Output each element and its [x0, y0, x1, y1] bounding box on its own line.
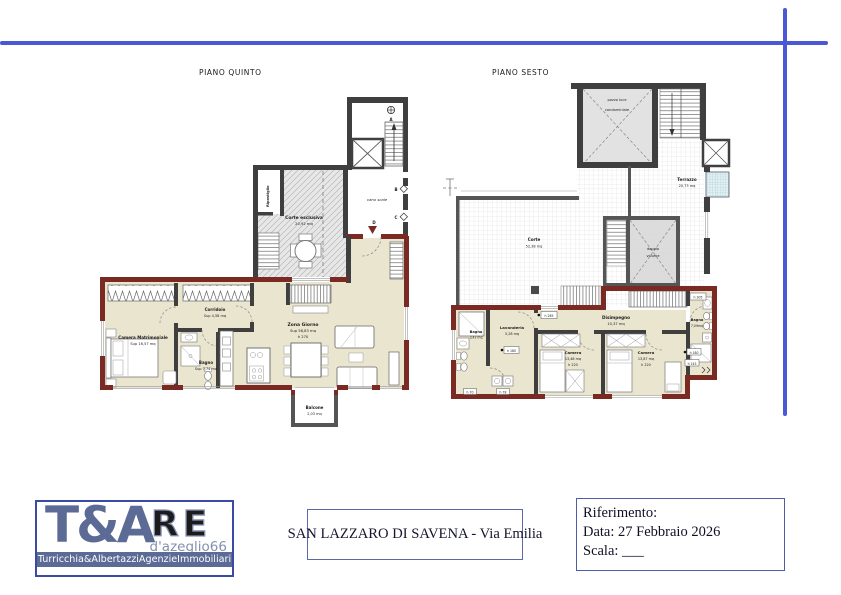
terrace-edge-stairs-icon [561, 286, 601, 306]
label-bagno-sx: Bagno [470, 330, 483, 334]
floorplan-sheet: PIANO QUINTO PIANO SESTO [0, 0, 841, 595]
label-pozzo-luce-2: condominiale [605, 108, 630, 112]
label-camera1-h: h 220 [568, 363, 578, 367]
label-h265: h 265 [544, 314, 553, 318]
dining-table-icon [284, 343, 328, 377]
label-marker-c: C [395, 215, 398, 220]
label-corte-esclusiva-area: 20,92 mq [295, 222, 313, 226]
label-corte-esclusiva: Corte esclusiva [285, 215, 323, 221]
label-h305: h 305 [693, 296, 702, 300]
property-title-text: SAN LAZZARO DI SAVENA - Via Emilia [288, 526, 543, 543]
label-h180-a: h 180 [507, 349, 516, 353]
kitchen-island-icon [247, 348, 270, 383]
label-bagno-dx: Bagno [691, 318, 704, 322]
label-zona-giorno-h: h 270 [298, 335, 309, 339]
label-balcone: Balcone [306, 405, 324, 410]
label-lavanderia-area: 5,28 mq [505, 332, 519, 336]
label-bagno: Bagno [199, 360, 213, 365]
label-terrazzo: Terrazzo [677, 177, 697, 182]
label-h180-b: h 180 [690, 351, 699, 355]
label-disimpegno-area: 10,37 mq [607, 322, 624, 326]
label-doppio-1: doppio [647, 247, 659, 251]
quinto-elevator-icon [352, 139, 383, 168]
logo-ta-text: T&A [45, 499, 152, 552]
label-disimpegno: Disimpegno [602, 315, 630, 320]
marker-a-icon [387, 106, 394, 113]
label-camera-matrimoniale: Camera Matrimoniale [118, 335, 168, 340]
label-terrazzo-area: 20,73 mq [679, 184, 696, 188]
logo-agency-bar: Turricchia&AlbertazziAgenzieImmobiliari [37, 552, 232, 567]
label-corte: Corte [528, 237, 541, 242]
terrace-stairs-icon [607, 220, 626, 266]
label-camera1-area: 13,48 mq [565, 357, 581, 361]
reference-box: Riferimento: Data: 27 Febbraio 2026 Scal… [576, 498, 785, 571]
plan-piano-quinto: vano scale Ripostiglio Corte esclusiva 2… [100, 97, 409, 427]
reference-date: Data: 27 Febbraio 2026 [583, 523, 784, 542]
label-zona-giorno-area: Sup 58,83 mq [290, 329, 316, 333]
armchair-icon [163, 371, 176, 384]
courtyard-stairs-icon [258, 233, 279, 269]
label-pozzo-luce-1: pozzo luce [607, 98, 627, 102]
label-h143: h 143 [688, 362, 697, 366]
marker-b-icon [400, 185, 407, 192]
label-corridoio: Corridoio [205, 307, 226, 312]
reference-label: Riferimento: [583, 504, 784, 523]
logo-re-text: RE [151, 507, 211, 541]
property-title-box: SAN LAZZARO DI SAVENA - Via Emilia [307, 509, 523, 560]
kitchen-units-icon [220, 331, 233, 386]
label-doppio-2: volume [647, 254, 660, 258]
label-marker-d: D [372, 220, 376, 225]
plan-piano-sesto: pozzo luce condominiale Terrazzo 20,73 m… [443, 83, 729, 399]
skylight-icon [706, 172, 729, 197]
label-bagno-area: Sup 7,74 mq [195, 367, 217, 371]
label-camera-matrimoniale-area: Sup 16,57 mq [130, 342, 155, 346]
label-marker-b: B [394, 187, 397, 192]
label-vano-scale: vano scale [367, 197, 388, 202]
sesto-stairwell-icon [660, 89, 700, 138]
sesto-elevator-icon [703, 140, 729, 166]
label-h70: h 70 [467, 391, 474, 395]
logo-re-outline: RE [149, 507, 227, 541]
reference-scale: Scala: ___ [583, 542, 784, 561]
entry-marker-icon [368, 226, 377, 234]
marker-c-icon [400, 213, 407, 220]
internal-stairs-icon [290, 285, 331, 303]
label-corridoio-area: Sup 4,58 mq [204, 314, 226, 318]
label-bagno-sx-area: 3,42 mq [470, 336, 483, 340]
label-camera2-h: h 220 [641, 363, 651, 367]
label-zona-giorno: Zona Giorno [287, 322, 318, 328]
label-marker-a: A [389, 117, 393, 122]
label-camera2-area: 13,87 mq [638, 357, 654, 361]
label-camera1: Camera [565, 350, 582, 355]
agency-logo: T&A RE d'azeglio66 Turricchia&Albertazzi… [35, 500, 234, 577]
label-lavanderia: Lavanderia [500, 325, 525, 330]
label-h78: h 78 [500, 391, 507, 395]
label-camera2: Camera [638, 350, 655, 355]
label-balcone-area: 2,03 mq [307, 412, 322, 416]
label-ripostiglio: Ripostiglio [266, 185, 270, 207]
drain-icon [531, 286, 539, 294]
internal-stairs-sesto-icon [629, 291, 687, 307]
label-corte-area: 52,38 mq [526, 245, 543, 249]
label-bagno-dx-area: 7,09mq [691, 324, 703, 328]
